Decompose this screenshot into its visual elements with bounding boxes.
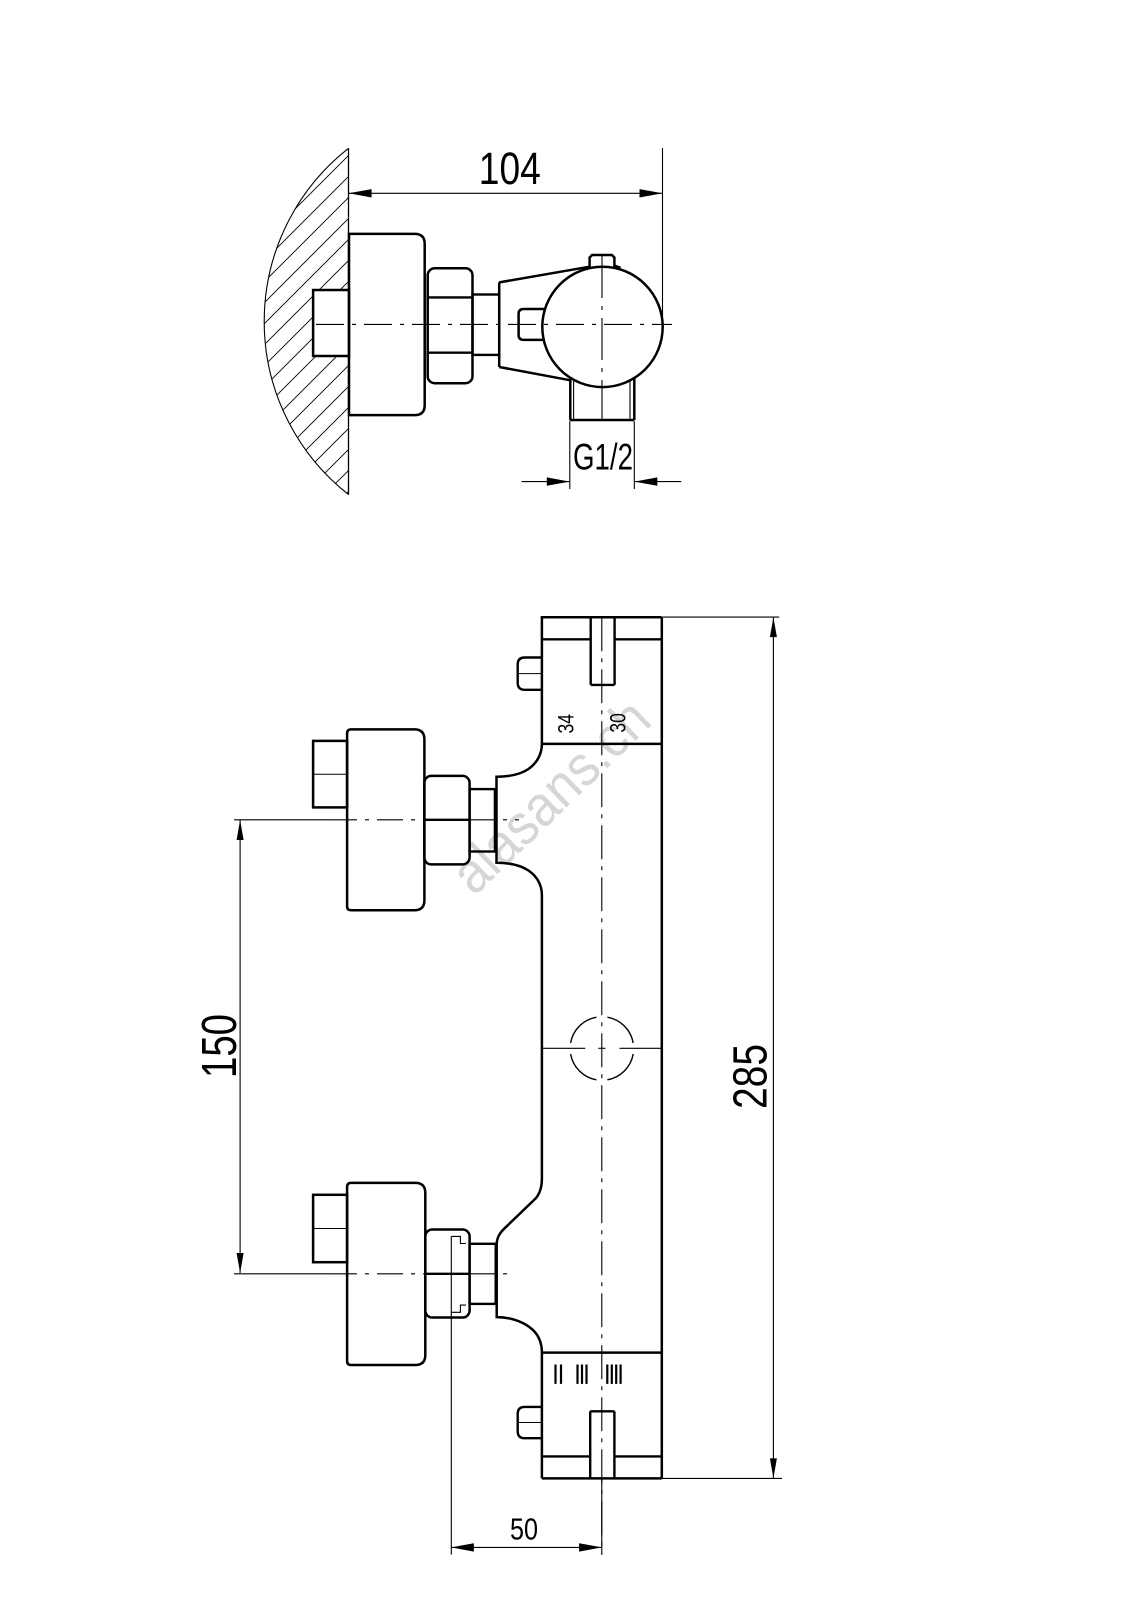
svg-text:285: 285 bbox=[725, 1044, 778, 1109]
svg-text:104: 104 bbox=[479, 143, 541, 194]
svg-text:50: 50 bbox=[510, 1512, 538, 1547]
svg-text:150: 150 bbox=[193, 1014, 247, 1078]
svg-text:34: 34 bbox=[553, 714, 578, 734]
svg-text:G1/2: G1/2 bbox=[573, 437, 633, 478]
svg-text:30: 30 bbox=[606, 713, 631, 732]
